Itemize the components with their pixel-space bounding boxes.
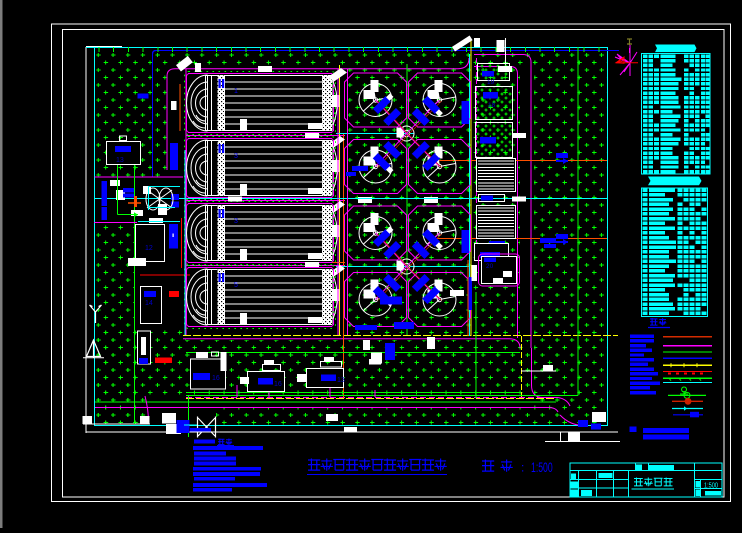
svg-text:13: 13 [116, 157, 124, 164]
svg-text:20: 20 [486, 263, 494, 270]
svg-text:1: 1 [234, 88, 238, 95]
svg-text:14: 14 [145, 300, 153, 307]
svg-text:16: 16 [212, 375, 220, 382]
svg-text:19: 19 [487, 79, 495, 86]
svg-text:3: 3 [234, 218, 238, 225]
svg-text:16: 16 [274, 381, 282, 388]
svg-text:18: 18 [488, 102, 496, 109]
svg-text:1:500: 1:500 [704, 482, 718, 490]
svg-text:1:500: 1:500 [531, 460, 553, 476]
svg-text:12: 12 [145, 245, 153, 252]
svg-text:13: 13 [337, 377, 345, 384]
svg-text::: : [521, 461, 524, 475]
svg-text:3: 3 [234, 153, 238, 160]
svg-text:5: 5 [234, 282, 238, 289]
